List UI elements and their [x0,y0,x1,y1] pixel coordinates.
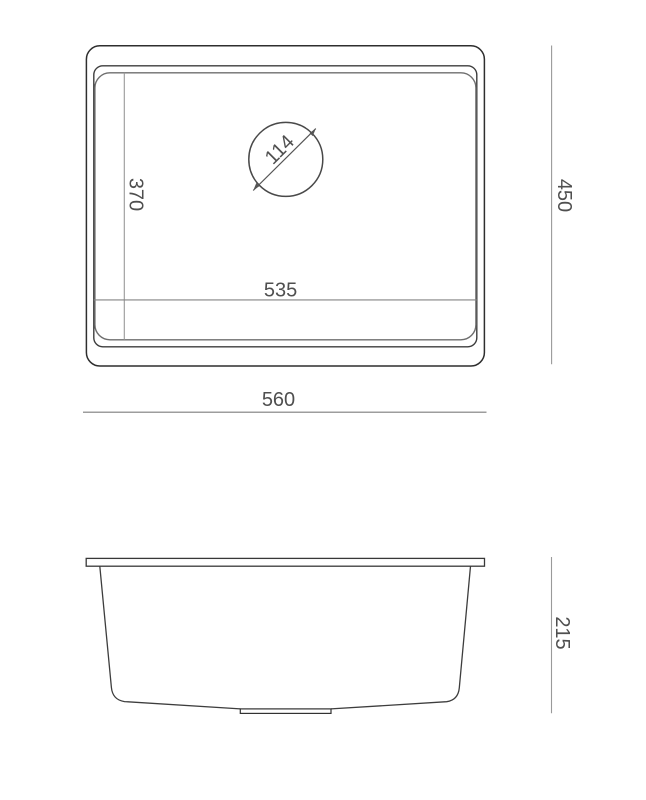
svg-text:560: 560 [262,389,295,411]
svg-text:370: 370 [125,178,147,211]
svg-text:450: 450 [553,179,575,212]
svg-text:114: 114 [261,131,299,169]
svg-text:535: 535 [264,280,297,302]
svg-text:215: 215 [551,616,573,649]
